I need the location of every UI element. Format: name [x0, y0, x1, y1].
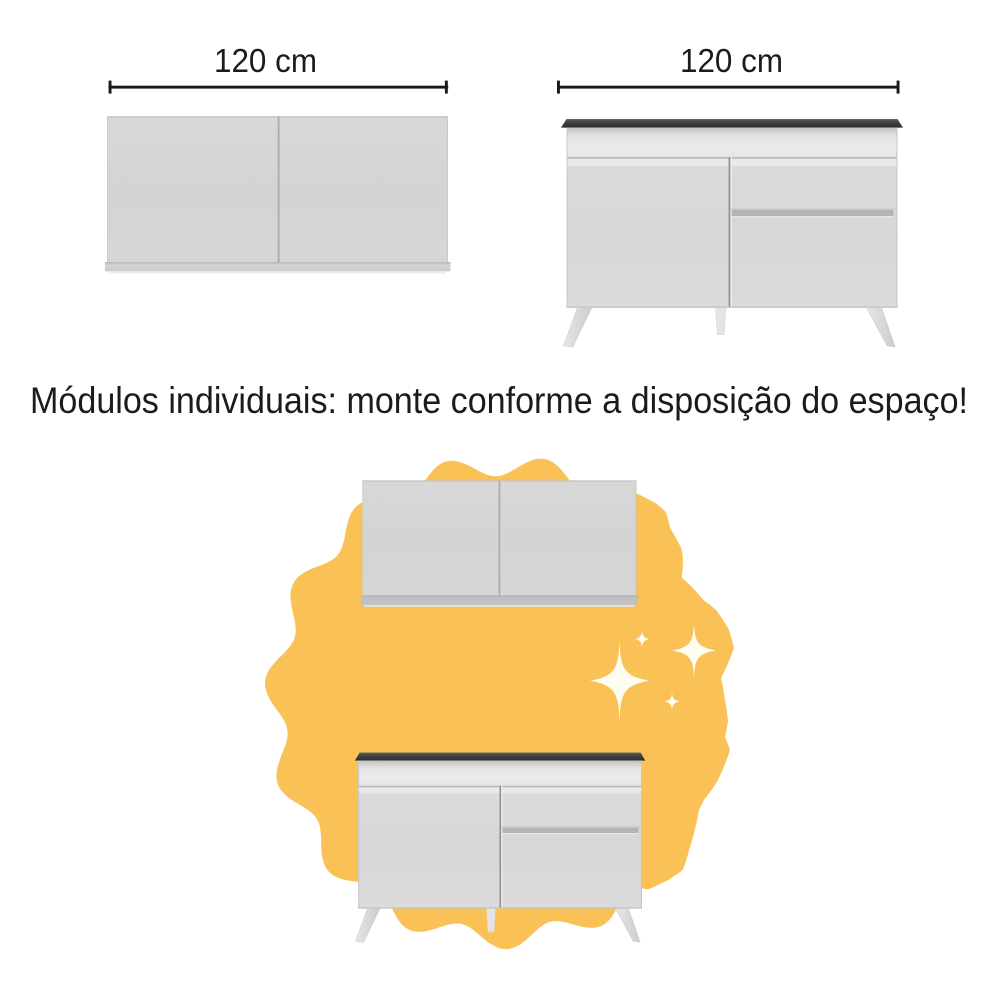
svg-text:120 cm: 120 cm — [214, 43, 317, 80]
svg-text:120 cm: 120 cm — [680, 43, 783, 80]
svg-text:Módulos individuais: monte con: Módulos individuais: monte conforme a di… — [30, 380, 968, 421]
